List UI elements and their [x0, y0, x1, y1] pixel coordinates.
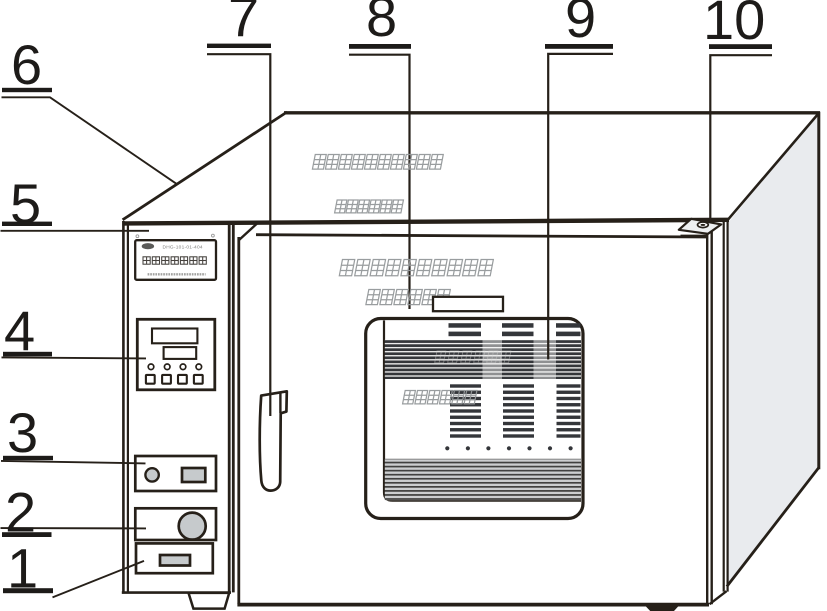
svg-text:9: 9 [565, 0, 596, 49]
svg-text:10: 10 [703, 0, 765, 51]
svg-text:3: 3 [7, 401, 38, 464]
svg-text:7: 7 [228, 0, 259, 48]
svg-text:8: 8 [366, 0, 397, 48]
svg-text:6: 6 [11, 33, 42, 96]
svg-text:DHG-101-01-404: DHG-101-01-404 [163, 244, 203, 250]
